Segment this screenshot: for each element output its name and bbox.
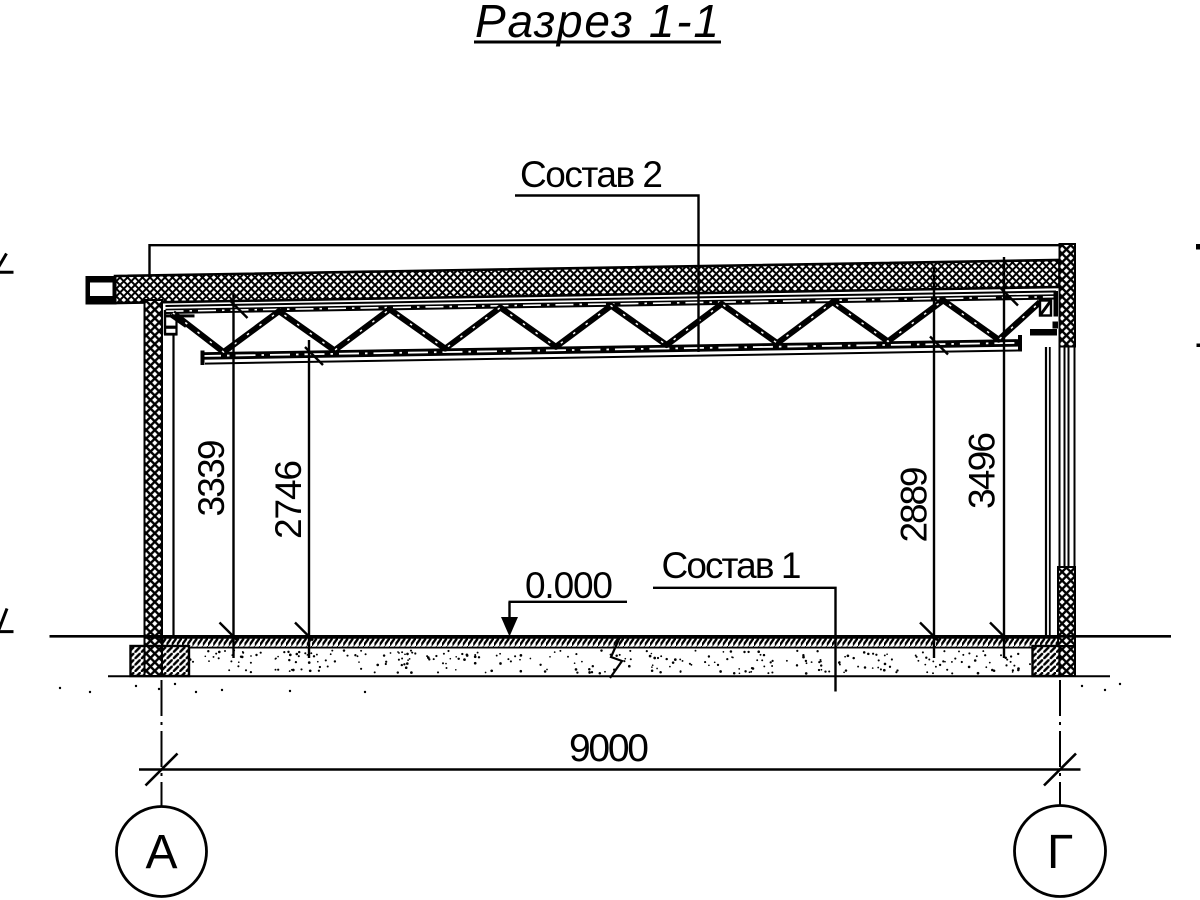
svg-text:Разрез 1-1: Разрез 1-1 [475, 0, 719, 47]
svg-text:А: А [145, 826, 177, 879]
svg-text:0.000: 0.000 [525, 565, 613, 606]
svg-text:Г: Г [1047, 826, 1073, 879]
svg-text:Состав 1: Состав 1 [662, 545, 802, 586]
svg-text:9000: 9000 [569, 727, 649, 770]
svg-text:3496: 3496 [962, 432, 1003, 509]
svg-text:3339: 3339 [191, 440, 232, 517]
svg-text:Состав 2: Состав 2 [520, 154, 663, 195]
svg-text:2746: 2746 [268, 460, 309, 539]
svg-text:2889: 2889 [894, 467, 935, 543]
